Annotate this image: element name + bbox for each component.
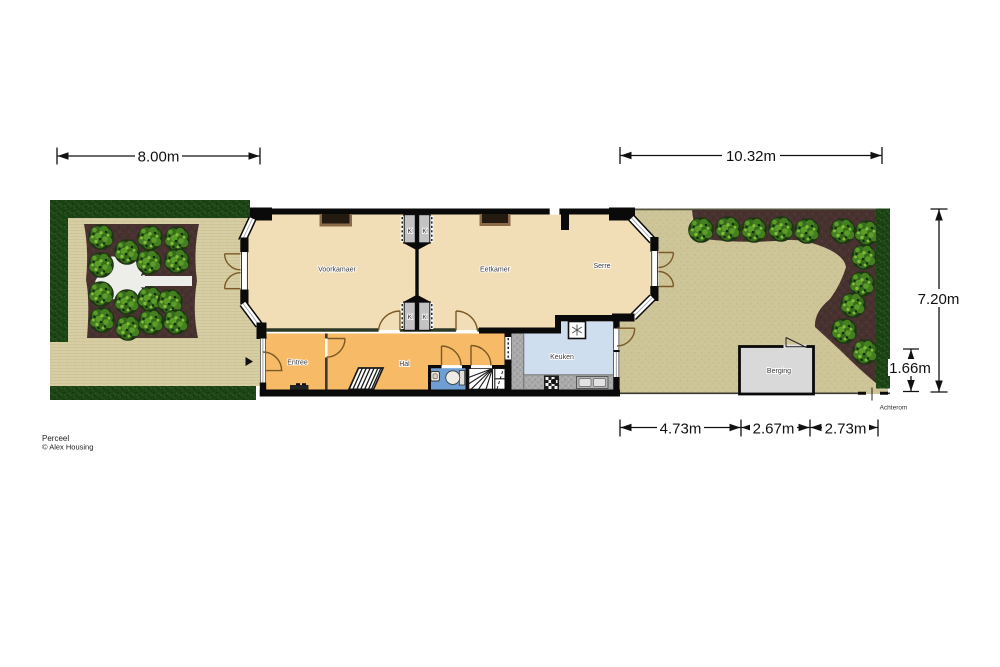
svg-text:4.73m: 4.73m: [660, 421, 702, 438]
svg-text:8.00m: 8.00m: [138, 149, 180, 166]
svg-text:Berging: Berging: [767, 368, 791, 375]
svg-text:© Alex Housing: © Alex Housing: [42, 443, 93, 452]
svg-text:Voorkamaer: Voorkamaer: [318, 267, 356, 274]
svg-text:2.67m: 2.67m: [753, 421, 795, 438]
svg-text:Keuken: Keuken: [550, 354, 574, 361]
svg-text:K: K: [422, 228, 427, 235]
svg-text:2.73m: 2.73m: [825, 421, 867, 438]
svg-text:Achterom: Achterom: [880, 405, 908, 412]
svg-text:Entree: Entree: [287, 360, 308, 367]
svg-text:Serre: Serre: [593, 263, 610, 270]
svg-text:K: K: [422, 314, 427, 321]
svg-text:Hal: Hal: [399, 361, 410, 368]
svg-text:10.32m: 10.32m: [726, 148, 776, 165]
svg-text:K: K: [408, 228, 413, 235]
svg-text:7.20m: 7.20m: [918, 291, 960, 308]
svg-text:1.66m: 1.66m: [889, 360, 931, 377]
svg-text:K: K: [408, 314, 413, 321]
svg-text:Eetkamer: Eetkamer: [480, 267, 511, 274]
